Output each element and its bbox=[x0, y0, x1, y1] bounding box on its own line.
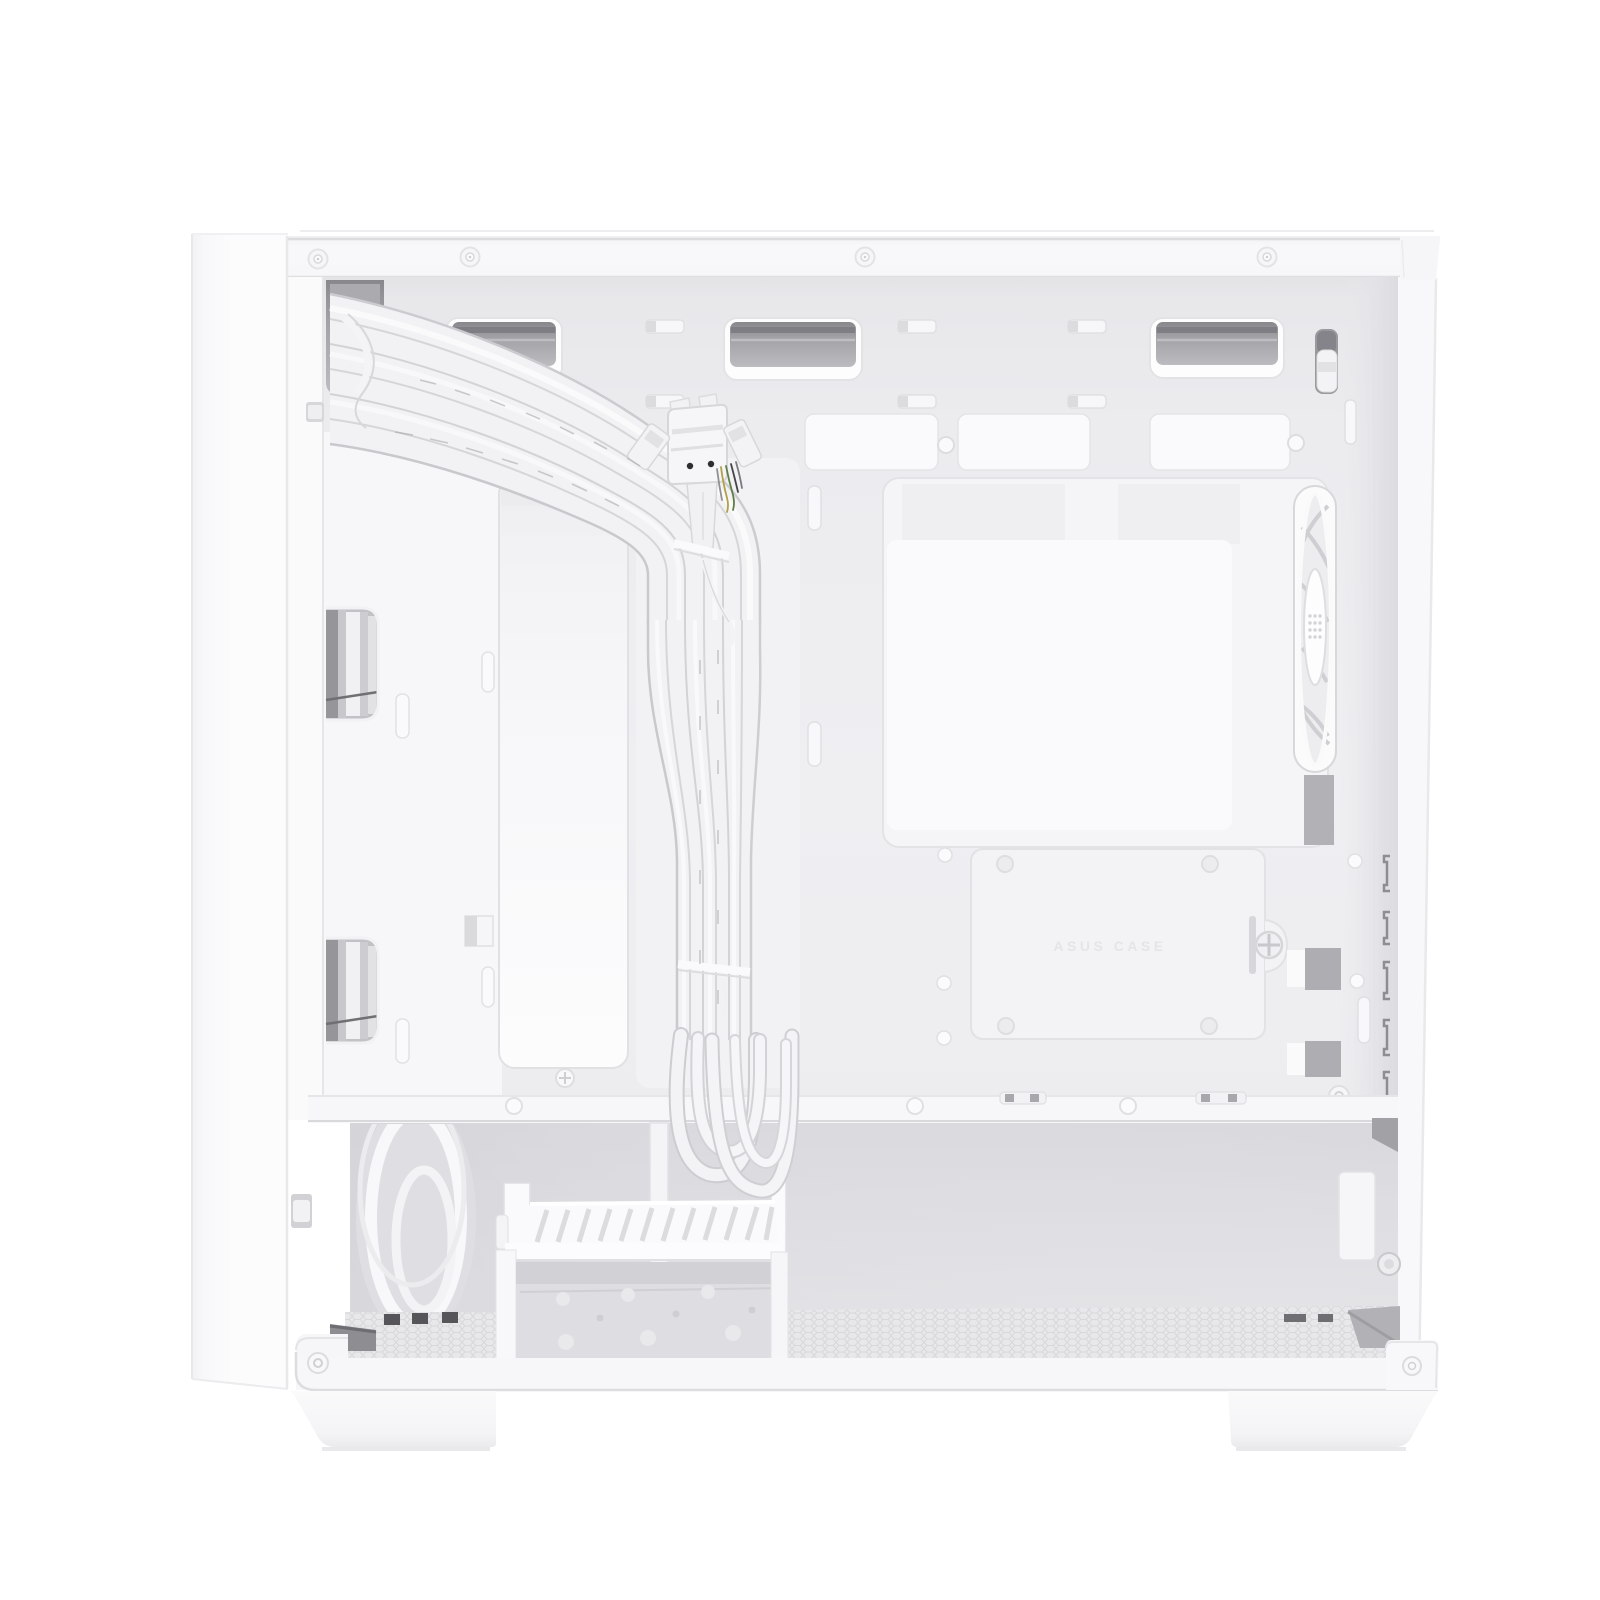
svg-text:ASUS CASE: ASUS CASE bbox=[1053, 938, 1166, 954]
